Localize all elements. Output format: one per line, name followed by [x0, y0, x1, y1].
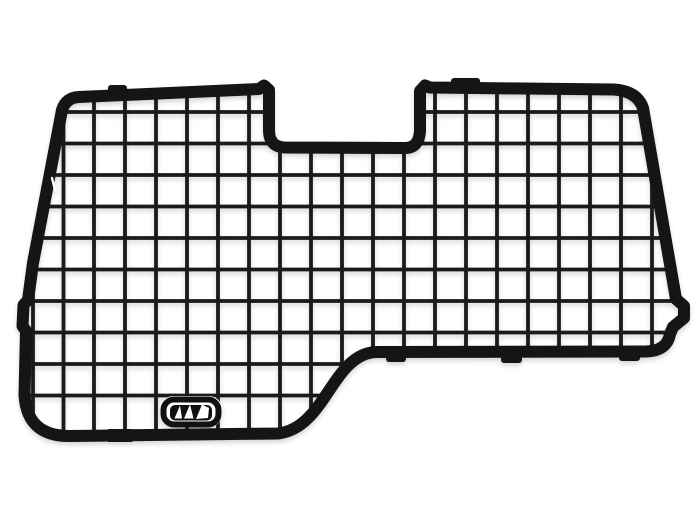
product-photo	[0, 0, 700, 525]
brand-badge-icon	[160, 396, 222, 427]
mesh-grid	[14, 78, 692, 448]
grille-image	[0, 0, 700, 525]
mesh-vertical-wires	[33, 78, 652, 448]
grille-frame-outline	[23, 86, 685, 437]
